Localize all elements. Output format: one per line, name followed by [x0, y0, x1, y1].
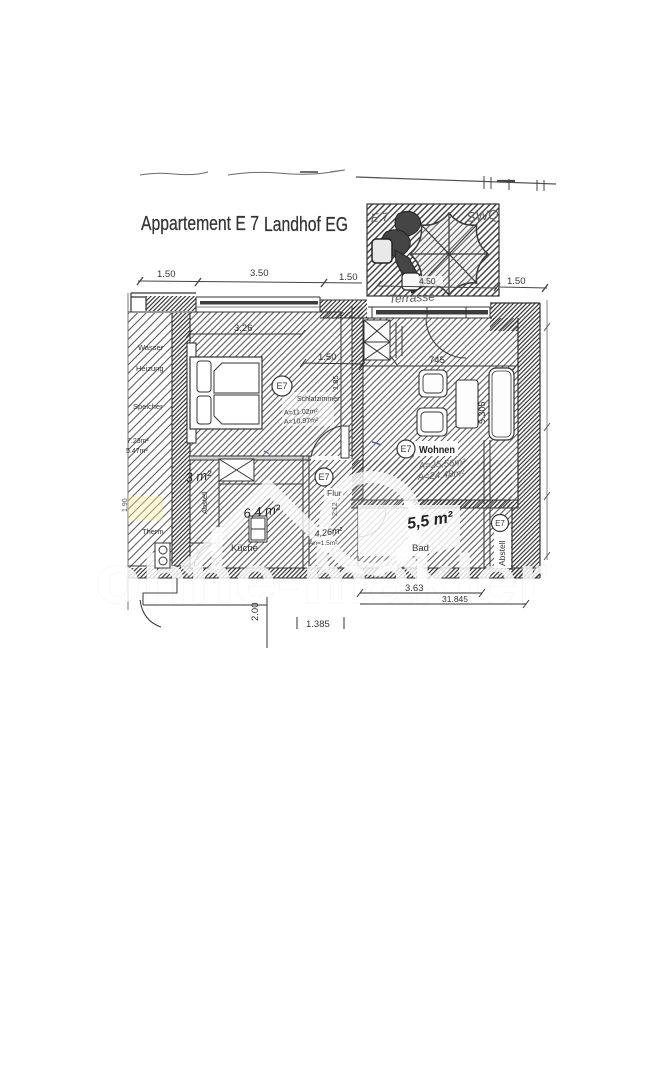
- svg-text:Flur: Flur: [327, 488, 342, 498]
- svg-text:Küche: Küche: [231, 543, 258, 554]
- svg-text:7.23m²: 7.23m²: [127, 438, 149, 445]
- svg-text:An=1.5m²: An=1.5m²: [309, 540, 338, 547]
- svg-text:3.50: 3.50: [250, 268, 269, 279]
- svg-text:5.305: 5.305: [477, 401, 487, 424]
- svg-text:Appartement E 7: Appartement E 7: [141, 213, 259, 235]
- svg-text:1.90: 1.90: [122, 498, 129, 512]
- svg-text:5.47m²: 5.47m²: [126, 448, 148, 455]
- svg-text:Heizung: Heizung: [136, 364, 164, 373]
- svg-text:E 7: E 7: [370, 210, 390, 225]
- svg-text:Therm: Therm: [142, 527, 164, 536]
- svg-text:Landhof EG: Landhof EG: [264, 214, 348, 236]
- svg-text:2.00: 2.00: [250, 603, 261, 622]
- svg-text:2.12: 2.12: [332, 502, 339, 516]
- svg-text:1.50: 1.50: [507, 276, 526, 287]
- svg-text:Schlafzimmer: Schlafzimmer: [297, 396, 340, 403]
- svg-text:745: 745: [429, 355, 445, 366]
- svg-text:Wasser: Wasser: [138, 343, 164, 352]
- svg-text:1.50: 1.50: [318, 352, 337, 363]
- svg-text:31.845: 31.845: [442, 594, 468, 604]
- svg-text:E7: E7: [276, 381, 287, 391]
- svg-text:4.50: 4.50: [419, 276, 436, 286]
- svg-text:Wohnen: Wohnen: [419, 444, 455, 456]
- svg-text:Terrasse: Terrasse: [388, 290, 435, 306]
- svg-text:3.63: 3.63: [405, 583, 424, 594]
- svg-text:Speicher: Speicher: [133, 402, 163, 411]
- svg-text:1.85: 1.85: [331, 375, 340, 390]
- svg-text:Abstell: Abstell: [497, 540, 507, 566]
- svg-text:E7: E7: [400, 444, 411, 454]
- svg-text:1.50: 1.50: [339, 272, 358, 283]
- svg-text:E7: E7: [495, 519, 505, 528]
- svg-text:Abstell: Abstell: [200, 491, 209, 514]
- svg-text:3.26: 3.26: [234, 323, 253, 334]
- svg-text:1.50: 1.50: [157, 269, 176, 280]
- svg-text:E7: E7: [318, 472, 329, 482]
- svg-text:Bad: Bad: [412, 543, 429, 554]
- svg-text:3 m²: 3 m²: [185, 467, 213, 485]
- svg-text:1.385: 1.385: [306, 619, 330, 630]
